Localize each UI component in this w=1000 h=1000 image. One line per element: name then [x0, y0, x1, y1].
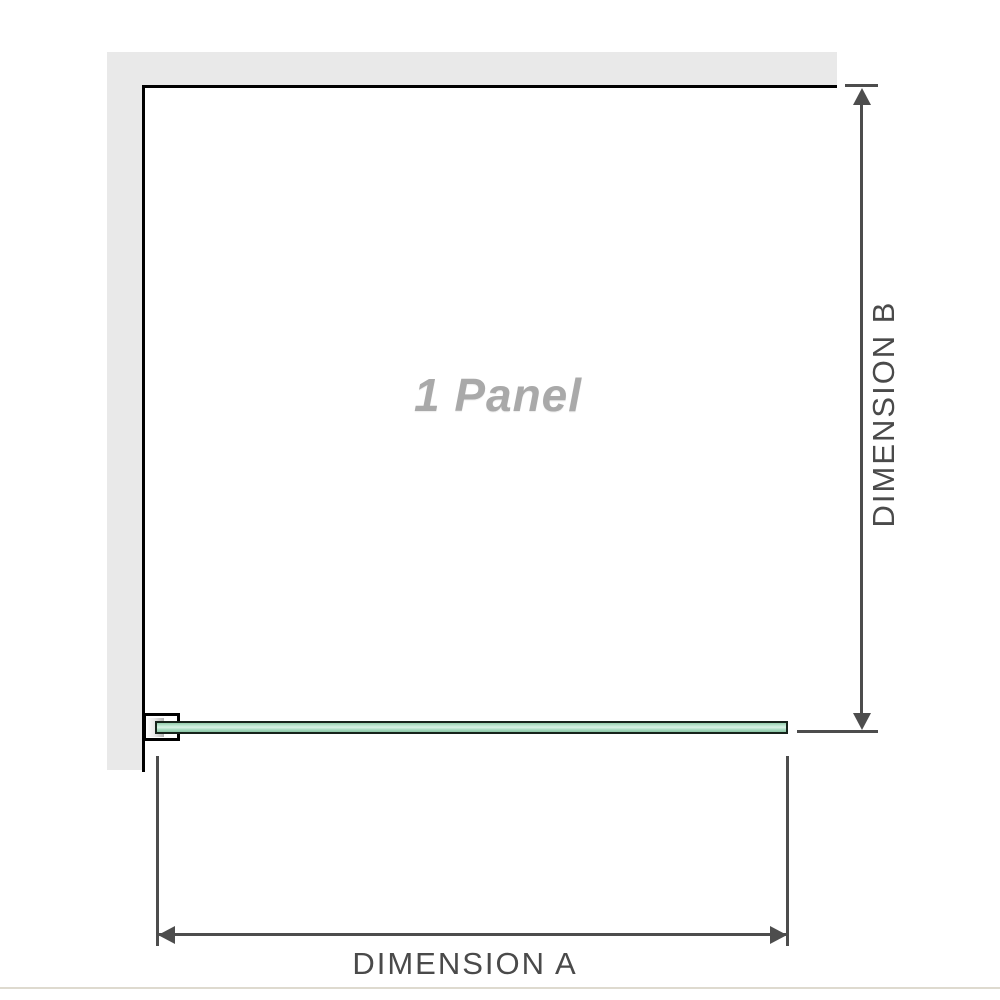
arrow-down-icon [853, 713, 871, 730]
enclosure-outline-left [142, 85, 145, 772]
wall-top [107, 52, 837, 85]
arrow-right-icon [770, 926, 787, 944]
dimension-a-label: DIMENSION A [265, 946, 665, 982]
dimension-b-line [860, 95, 863, 720]
dimension-b-label: DIMENSION B [866, 284, 902, 544]
panel-count-label: 1 Panel [298, 368, 698, 422]
dimension-b-top-cap [845, 84, 878, 87]
enclosure-outline-top [142, 85, 837, 88]
arrow-left-icon [158, 926, 175, 944]
glass-panel [155, 721, 788, 734]
dimension-a-line [159, 933, 786, 936]
dimension-b-bottom-cap [797, 730, 878, 733]
panel-dimension-diagram: 1 Panel DIMENSION B DIMENSION A [0, 0, 1000, 1000]
wall-left [107, 52, 142, 770]
arrow-up-icon [853, 88, 871, 105]
dimension-a-left-extension [156, 756, 159, 946]
dimension-a-right-extension [786, 756, 789, 946]
footer-rule [0, 987, 1000, 989]
